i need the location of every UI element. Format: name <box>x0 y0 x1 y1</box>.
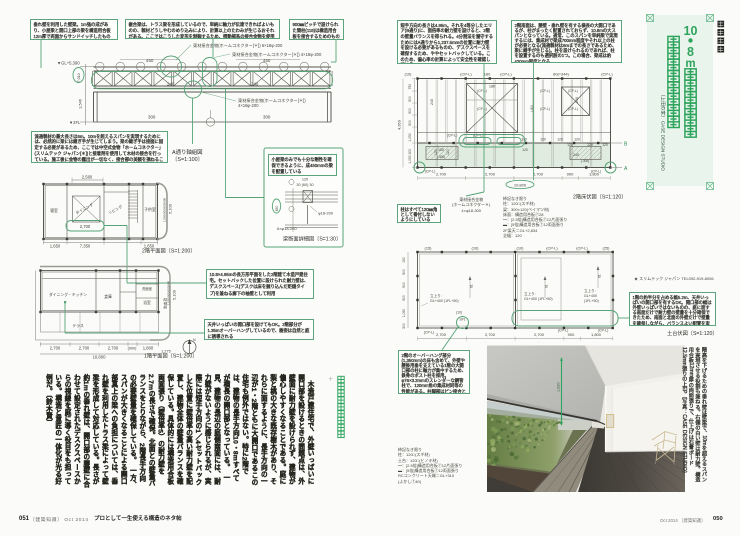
svg-text:240: 240 <box>430 99 434 105</box>
svg-text:900: 900 <box>568 332 575 337</box>
svg-text:10: 10 <box>684 24 698 38</box>
svg-text:倉庫: 倉庫 <box>104 294 112 299</box>
svg-text:1,800: 1,800 <box>589 172 600 177</box>
svg-text:2階平面図〔S=1:200〕: 2階平面図〔S=1:200〕 <box>142 247 195 255</box>
svg-text:土台伏図〔S=1:120〕: 土台伏図〔S=1:120〕 <box>667 329 718 337</box>
svg-text:2,700: 2,700 <box>485 332 496 337</box>
svg-text:7,350: 7,350 <box>80 244 91 249</box>
svg-text:2,700: 2,700 <box>79 346 90 351</box>
svg-text:(10): (10) <box>456 311 462 315</box>
svg-text:450: 450 <box>146 58 154 63</box>
svg-text:(1FL+50): (1FL+50) <box>584 299 599 303</box>
svg-text:1,050/900/900/900: 1,050/900/900/900 <box>163 197 167 222</box>
svg-text:(10): (10) <box>517 246 525 251</box>
svg-text:900: 900 <box>402 295 406 301</box>
svg-text:120: 120 <box>587 143 593 147</box>
svg-text:(25): (25) <box>603 246 611 251</box>
svg-text:(CP-L): (CP-L) <box>447 134 458 138</box>
svg-text:(-300): (-300) <box>437 155 446 159</box>
svg-text:300: 300 <box>148 115 156 120</box>
svg-text:(CP-L): (CP-L) <box>546 246 558 251</box>
svg-text:(10): (10) <box>472 246 480 251</box>
svg-text:リビング: リビング <box>107 204 123 216</box>
svg-text:(CP-L): (CP-L) <box>500 72 512 77</box>
svg-text:900: 900 <box>402 282 406 288</box>
svg-text:2,700: 2,700 <box>436 172 447 177</box>
svg-text:(CP-L): (CP-L) <box>576 246 588 251</box>
svg-text:10,800: 10,800 <box>93 355 106 360</box>
svg-text:★ スリムテック ジャパン TEL092-919-8006: ★ スリムテック ジャパン TEL092-919-8006 <box>634 275 714 281</box>
svg-text:A: A <box>624 166 628 172</box>
svg-text:450: 450 <box>263 58 271 63</box>
svg-text:(CP-L): (CP-L) <box>477 107 487 111</box>
svg-text:120: 120 <box>602 143 608 147</box>
svg-text:▼2FL: ▼2FL <box>69 120 81 125</box>
svg-text:N: N <box>193 338 196 342</box>
svg-text:1,650: 1,650 <box>50 244 61 249</box>
svg-text:ダイニング・キッチン: ダイニング・キッチン <box>49 292 87 297</box>
svg-text:2,700: 2,700 <box>108 346 119 351</box>
svg-text:寝室: 寝室 <box>50 208 58 213</box>
svg-text:120: 120 <box>522 148 528 152</box>
svg-text:(CP-L): (CP-L) <box>460 72 472 77</box>
svg-text:(CP-L): (CP-L) <box>477 89 487 93</box>
svg-text:立上り:: 立上り: <box>584 288 596 293</box>
svg-text:300: 300 <box>263 115 271 120</box>
svg-text:GL+400: GL+400 <box>584 294 597 298</box>
svg-text:浴室: 浴室 <box>143 300 151 305</box>
svg-text:1,800: 1,800 <box>591 332 602 337</box>
svg-text:240: 240 <box>573 153 579 157</box>
svg-text:梁断面詳細図〔S=1:30〕: 梁断面詳細図〔S=1:30〕 <box>283 235 341 243</box>
svg-text:(10): (10) <box>405 72 413 77</box>
svg-text:180: 180 <box>489 85 495 89</box>
svg-text:テラス: テラス <box>72 323 84 328</box>
svg-text:300: 300 <box>402 323 406 329</box>
svg-text:B: B <box>624 142 628 148</box>
svg-text:▼GL+5,390: ▼GL+5,390 <box>57 61 80 66</box>
svg-text:GL+400 (1FL+50): GL+400 (1FL+50) <box>524 297 553 301</box>
svg-text:900: 900 <box>402 269 406 275</box>
svg-text:10,800: 10,800 <box>514 182 527 187</box>
svg-text:洗面室: 洗面室 <box>142 286 153 291</box>
svg-text:SP1: SP1 <box>459 318 465 322</box>
svg-text:2,700: 2,700 <box>533 172 544 177</box>
svg-text:240: 240 <box>575 97 579 103</box>
svg-text:子供室: 子供室 <box>144 207 156 212</box>
svg-text:5,100: 5,100 <box>168 203 173 214</box>
svg-text:＋: ＋ <box>328 376 334 383</box>
svg-text:(CP-L): (CP-L) <box>425 170 436 174</box>
svg-text:1,020: 1,020 <box>557 382 561 392</box>
svg-text:〔上田の家〕 CASE DESIGN STUDIO: 〔上田の家〕 CASE DESIGN STUDIO <box>660 92 667 171</box>
svg-text:5,100: 5,100 <box>172 289 177 300</box>
svg-text:120: 120 <box>540 138 546 142</box>
svg-text:GL+400 (1FL+50): GL+400 (1FL+50) <box>430 299 459 303</box>
svg-text:1,050: 1,050 <box>408 155 412 164</box>
svg-text:7,010: 7,010 <box>77 73 81 82</box>
svg-text:(15): (15) <box>425 246 433 251</box>
svg-text:φ18-200: φ18-200 <box>318 211 334 216</box>
svg-text:900: 900 <box>408 96 412 102</box>
svg-text:2,700: 2,700 <box>485 172 496 177</box>
svg-text:1階平面図〔S=1:200〕: 1階平面図〔S=1:200〕 <box>144 352 197 360</box>
svg-text:(CP-L): (CP-L) <box>568 107 578 111</box>
svg-text:150: 150 <box>402 257 406 263</box>
svg-text:(-300): (-300) <box>581 159 590 163</box>
svg-text:(CP-L): (CP-L) <box>568 89 578 93</box>
svg-text:120: 120 <box>567 143 573 147</box>
svg-text:240: 240 <box>167 82 175 87</box>
svg-text:180: 180 <box>484 72 491 77</box>
svg-text:900: 900 <box>567 172 574 177</box>
svg-text:1,050/900/900/900: 1,050/900/900/900 <box>167 280 171 305</box>
svg-text:120: 120 <box>446 149 450 155</box>
svg-text:1,050: 1,050 <box>408 133 412 142</box>
svg-text:120: 120 <box>574 138 580 142</box>
svg-text:立上り:: 立上り: <box>524 291 536 296</box>
svg-text:4,950: 4,950 <box>397 119 402 130</box>
svg-text:2,700: 2,700 <box>436 332 447 337</box>
svg-text:900: 900 <box>408 108 412 114</box>
svg-text:81: 81 <box>545 284 549 288</box>
svg-text:120: 120 <box>557 138 563 142</box>
svg-text:立上り:: 立上り: <box>430 293 442 298</box>
svg-text:30 (60) 30: 30 (60) 30 <box>296 183 313 187</box>
svg-text:(900): (900) <box>128 347 138 351</box>
svg-text:(CP-L): (CP-L) <box>540 107 550 111</box>
svg-text:81: 81 <box>470 284 474 288</box>
svg-text:(CP-L): (CP-L) <box>601 72 613 77</box>
svg-text:2階床伏図〔S=1:120〕: 2階床伏図〔S=1:120〕 <box>573 193 626 201</box>
svg-text:6×φ18-200: 6×φ18-200 <box>277 226 297 231</box>
svg-text:750: 750 <box>408 84 412 90</box>
svg-text:2,700: 2,700 <box>534 332 545 337</box>
svg-text:81: 81 <box>598 274 602 278</box>
svg-text:300: 300 <box>408 149 412 155</box>
svg-text:450: 450 <box>275 206 279 212</box>
svg-text:60(=344): 60(=344) <box>553 72 569 77</box>
svg-text:900: 900 <box>408 120 412 126</box>
svg-text:240: 240 <box>251 82 259 87</box>
svg-text:2,560: 2,560 <box>82 175 93 180</box>
svg-text:150: 150 <box>438 148 444 152</box>
svg-text:1,546: 1,546 <box>78 98 83 109</box>
svg-text:(CP-L): (CP-L) <box>424 331 435 335</box>
svg-text:2,700: 2,700 <box>80 224 91 229</box>
svg-text:(CP-L): (CP-L) <box>540 89 550 93</box>
svg-text:8: 8 <box>687 45 694 59</box>
svg-text:2,700: 2,700 <box>50 346 61 351</box>
svg-text:1,050: 1,050 <box>402 309 406 318</box>
svg-text:1,800: 1,800 <box>143 346 154 351</box>
svg-text:120: 120 <box>302 178 308 182</box>
